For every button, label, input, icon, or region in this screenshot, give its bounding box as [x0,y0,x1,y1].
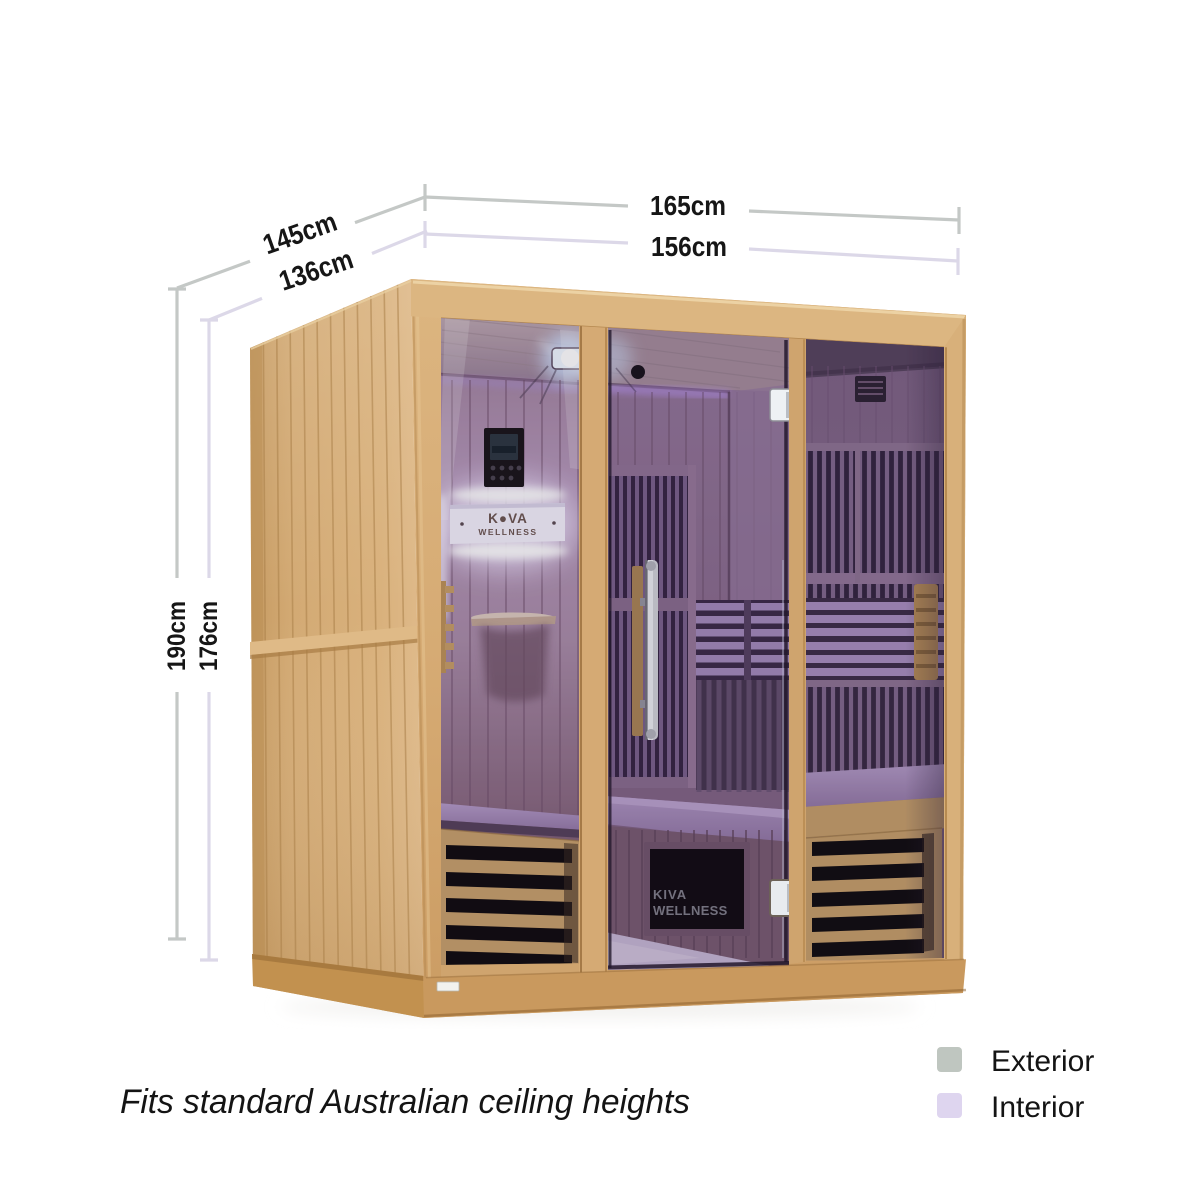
svg-text:165cm: 165cm [650,190,726,221]
svg-text:Fits standard Australian ceili: Fits standard Australian ceiling heights [120,1083,690,1121]
svg-text:Interior: Interior [991,1091,1084,1124]
svg-text:176cm: 176cm [195,601,223,671]
svg-text:190cm: 190cm [163,601,191,671]
svg-text:Exterior: Exterior [991,1045,1094,1078]
svg-text:156cm: 156cm [651,231,727,262]
